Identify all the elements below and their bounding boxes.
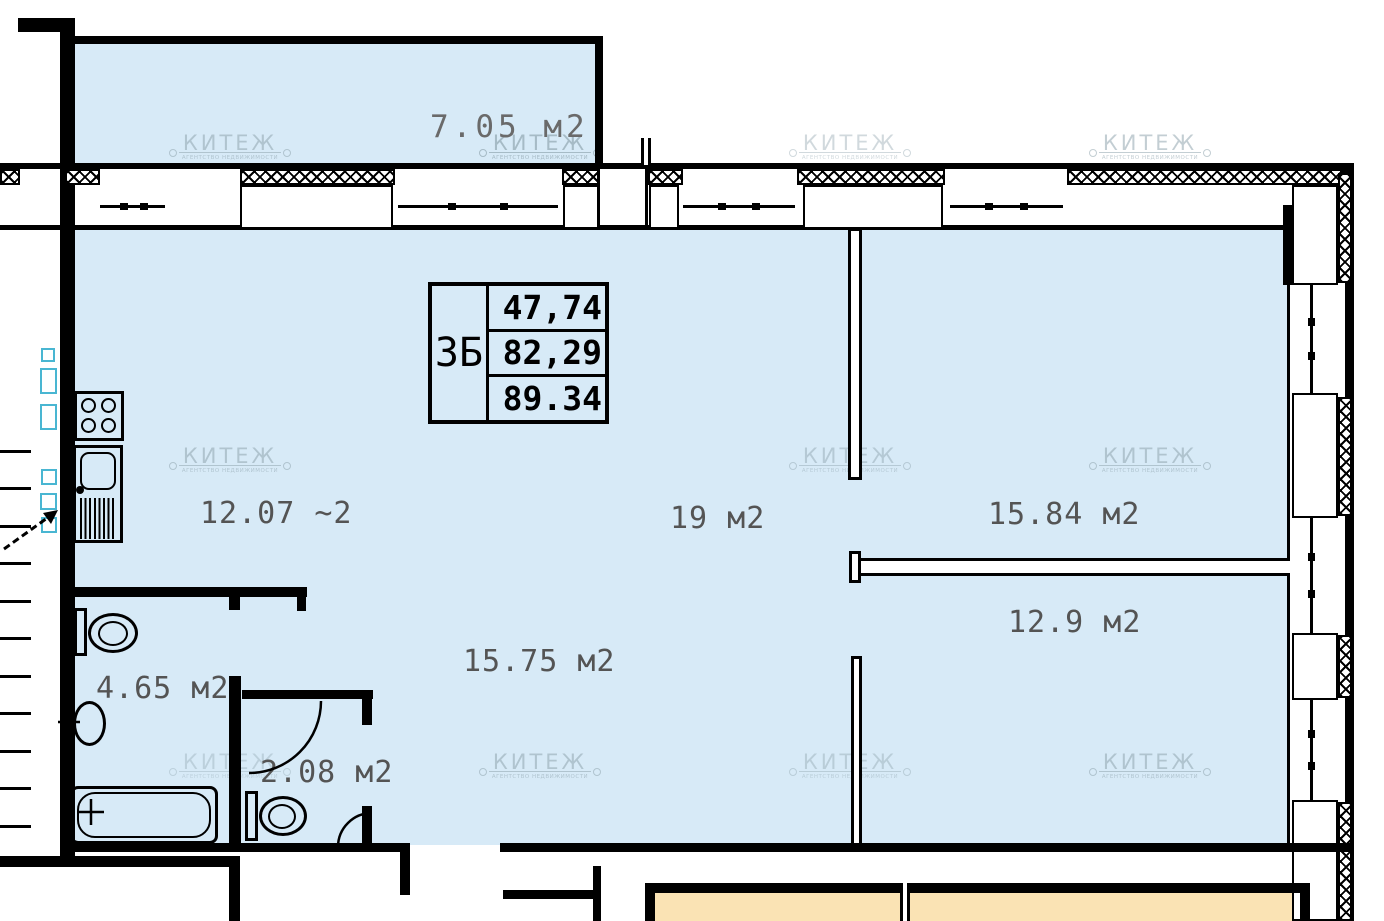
watermark: КИТЕЖ АГЕНТСТВО НЕДВИЖИМОСТИ [475, 752, 605, 781]
apartment-area-value: 47,74 [489, 286, 605, 329]
stair-tread [0, 450, 31, 453]
wall [645, 169, 648, 230]
room-label-room-15-84: 15.84 м2 [988, 500, 1141, 530]
wall [60, 587, 307, 597]
window [1310, 700, 1313, 800]
vent-shaft [40, 404, 57, 430]
wash-basin [73, 701, 106, 746]
wall [900, 883, 910, 921]
toilet-tank [245, 791, 258, 841]
window-pier [1292, 185, 1338, 285]
hatched-wall [0, 169, 20, 185]
stair-tread [0, 750, 31, 753]
hatched-wall [240, 169, 395, 185]
room-label-room-12-9: 12.9 м2 [1008, 608, 1141, 638]
stove [74, 391, 124, 441]
window-pier [1292, 633, 1338, 700]
stair-tread [0, 562, 31, 565]
partition-wall [851, 656, 862, 846]
window [950, 205, 1063, 208]
window [1310, 285, 1313, 393]
partition-wall [848, 228, 862, 480]
wall [593, 866, 601, 921]
room-label-balcony: 7.05 м2 [430, 112, 589, 143]
apartment-unit: 3Б [432, 286, 489, 420]
kitchen-sink [73, 445, 123, 543]
window-tick [985, 203, 993, 210]
window-pier [1292, 393, 1338, 518]
vent-shaft [41, 469, 57, 485]
wall [362, 698, 372, 725]
watermark-brand: КИТЕЖ [165, 133, 295, 154]
watermark: КИТЕЖ АГЕНТСТВО НЕДВИЖИМОСТИ [785, 133, 915, 162]
floor-plan: КИТЕЖ АГЕНТСТВО НЕДВИЖИМОСТИ КИТЕЖ АГЕНТ… [0, 0, 1384, 921]
toilet-bowl-inner [268, 804, 296, 829]
stair-tread [0, 825, 31, 828]
window-tick [1308, 762, 1315, 770]
watermark: КИТЕЖ АГЕНТСТВО НЕДВИЖИМОСТИ [1085, 446, 1215, 475]
hatched-wall [797, 169, 945, 185]
wall [645, 883, 1310, 893]
partition-wall-cap [849, 551, 861, 583]
wall [242, 690, 373, 699]
hatched-wall [1067, 169, 1345, 185]
apartment-info-table: 3Б 47,74 82,29 89.34 [428, 282, 609, 424]
partition-wall [861, 558, 1290, 576]
window [100, 205, 165, 208]
vent-shaft [41, 517, 57, 533]
window-tick [718, 203, 726, 210]
stair-tread [0, 525, 31, 528]
watermark: КИТЕЖ АГЕНТСТВО НЕДВИЖИМОСТИ [165, 133, 295, 162]
wall [641, 138, 651, 165]
vent-shaft [40, 368, 57, 394]
watermark: КИТЕЖ АГЕНТСТВО НЕДВИЖИМОСТИ [785, 752, 915, 781]
hatched-wall [562, 169, 600, 185]
stove-burner [101, 398, 116, 413]
wall [503, 890, 598, 899]
hatched-wall [1338, 397, 1352, 516]
wall [60, 18, 75, 858]
hatched-wall [1338, 802, 1352, 921]
wall [1283, 205, 1292, 285]
room-label-wc: 2.08 м2 [260, 758, 393, 788]
hatched-wall [648, 169, 683, 185]
window-pier [1292, 800, 1338, 845]
window-tick [448, 203, 456, 210]
stair-tread [0, 637, 31, 640]
sink-drainer [80, 498, 117, 539]
window-tick [1308, 352, 1315, 360]
watermark: КИТЕЖ АГЕНТСТВО НЕДВИЖИМОСТИ [1085, 133, 1215, 162]
window-tick [752, 203, 760, 210]
wall [229, 856, 240, 921]
window-pier [563, 185, 599, 229]
window-pier [240, 185, 393, 229]
stair-tread [0, 712, 31, 715]
window-tick [140, 203, 148, 210]
stove-burner [81, 398, 96, 413]
wall [595, 36, 603, 169]
window-tick [120, 203, 128, 210]
wall [229, 676, 241, 848]
wall [297, 587, 306, 611]
watermark-flourish [179, 152, 281, 153]
wall [400, 845, 410, 895]
watermark-tagline: АГЕНТСТВО НЕДВИЖИМОСТИ [165, 156, 295, 162]
wall [229, 588, 240, 610]
window [398, 205, 558, 208]
neighbor-room-fill [652, 891, 1302, 921]
wall [645, 883, 655, 921]
room-label-bathroom: 4.65 м2 [96, 674, 229, 704]
room-label-kitchen: 12.07 ~2 [200, 499, 353, 529]
window-tick [1308, 553, 1315, 561]
apartment-area-value: 89.34 [489, 374, 605, 420]
apartment-area-value: 82,29 [489, 329, 605, 375]
hatched-wall [1338, 173, 1352, 283]
stove-burner [81, 418, 96, 433]
window-pier [803, 185, 943, 229]
bathtub-inner [77, 792, 211, 838]
stair-tread [0, 675, 31, 678]
wall [63, 36, 603, 44]
stair-tread [0, 600, 31, 603]
window-tick [500, 203, 508, 210]
hatched-wall [65, 169, 100, 185]
watermark: КИТЕЖ АГЕНТСТВО НЕДВИЖИМОСТИ [165, 446, 295, 475]
wall [0, 856, 240, 867]
window-tick [1308, 318, 1315, 326]
toilet-bowl-inner [98, 621, 128, 646]
watermark: КИТЕЖ АГЕНТСТВО НЕДВИЖИМОСТИ [1085, 752, 1215, 781]
room-label-room-19: 19 м2 [670, 504, 765, 534]
vent-shaft [41, 348, 55, 362]
window-tick [1020, 203, 1028, 210]
window-tick [1308, 730, 1315, 738]
wall [362, 806, 372, 846]
window [1310, 518, 1313, 633]
room-label-hall: 15.75 м2 [463, 647, 616, 677]
stove-burner [101, 418, 116, 433]
stair-tread [0, 787, 31, 790]
hatched-wall [1338, 635, 1352, 698]
window [683, 205, 795, 208]
wall [500, 843, 1353, 852]
stair-tread [0, 487, 31, 490]
window-pier [649, 185, 679, 229]
wall [597, 169, 600, 230]
sink-bowl [80, 452, 116, 490]
wall [1287, 230, 1290, 845]
vent-shaft [40, 493, 57, 510]
toilet-tank [74, 608, 87, 656]
window-tick [1308, 590, 1315, 598]
wall [1300, 883, 1310, 921]
